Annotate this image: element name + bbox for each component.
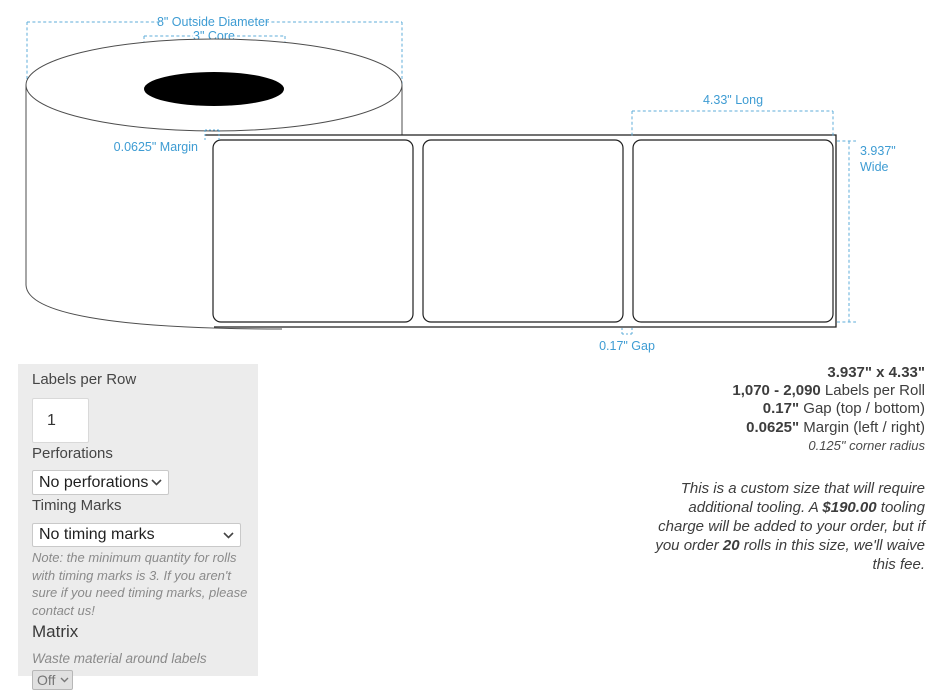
tooling-note: This is a custom size that will require …	[640, 479, 925, 574]
label-1	[213, 140, 413, 322]
chevron-down-icon	[223, 532, 234, 539]
spec-margin-label: Margin (left / right)	[799, 419, 925, 436]
spec-gap-label: Gap (top / bottom)	[799, 400, 925, 417]
timing-marks-label: Timing Marks	[32, 497, 244, 514]
spec-corner-radius: 0.125" corner radius	[640, 437, 925, 455]
perforations-label: Perforations	[32, 445, 244, 462]
label-2	[423, 140, 623, 322]
spec-gap-value: 0.17"	[763, 400, 799, 417]
tooling-note-price: $190.00	[822, 499, 876, 516]
chevron-down-icon	[151, 479, 162, 486]
timing-marks-selected-value: No timing marks	[39, 526, 155, 544]
outside-diameter-dimension-label: 8" Outside Diameter	[157, 15, 269, 29]
spec-margin: 0.0625" Margin (left / right)	[640, 419, 925, 437]
gap-dimension-bracket	[622, 328, 632, 334]
perforations-select[interactable]: No perforations	[32, 470, 169, 495]
options-panel: Labels per Row Perforations No perforati…	[18, 364, 258, 676]
long-dimension-lines	[632, 111, 833, 137]
spec-gap: 0.17" Gap (top / bottom)	[640, 400, 925, 418]
wide-dimension-word: Wide	[860, 160, 889, 174]
matrix-label: Matrix	[32, 622, 244, 642]
label-3	[633, 140, 833, 322]
tooling-note-part3: rolls in this size, we'll waive this fee…	[740, 537, 925, 573]
perforations-selected-value: No perforations	[39, 474, 148, 492]
labels-per-row-input[interactable]	[32, 398, 89, 443]
tooling-note-quantity: 20	[723, 537, 740, 554]
matrix-description: Waste material around labels	[32, 651, 244, 666]
margin-dimension-label: 0.0625" Margin	[114, 140, 198, 154]
spec-margin-value: 0.0625"	[746, 419, 799, 436]
spec-labels-per-roll-value: 1,070 - 2,090	[732, 382, 820, 399]
spec-labels-per-roll: 1,070 - 2,090 Labels per Roll	[640, 382, 925, 400]
long-dimension-label: 4.33" Long	[703, 93, 763, 107]
chevron-down-icon	[60, 677, 69, 683]
wide-dimension-value: 3.937"	[860, 144, 896, 158]
spec-labels-per-roll-label: Labels per Roll	[821, 382, 925, 399]
timing-marks-note: Note: the minimum quantity for rolls wit…	[32, 549, 257, 619]
matrix-selected-value: Off	[37, 672, 55, 688]
specs-summary: 3.937" x 4.33" 1,070 - 2,090 Labels per …	[640, 364, 925, 574]
gap-dimension-label: 0.17" Gap	[599, 339, 655, 353]
label-roll-diagram: 8" Outside Diameter 3" Core 0.0625" Marg…	[0, 0, 935, 360]
spec-size: 3.937" x 4.33"	[640, 364, 925, 382]
wide-dimension-lines	[837, 141, 856, 322]
timing-marks-select[interactable]: No timing marks	[32, 523, 241, 547]
roll-core-hole	[144, 72, 284, 106]
matrix-select[interactable]: Off	[32, 670, 73, 690]
labels-per-row-label: Labels per Row	[32, 371, 244, 388]
